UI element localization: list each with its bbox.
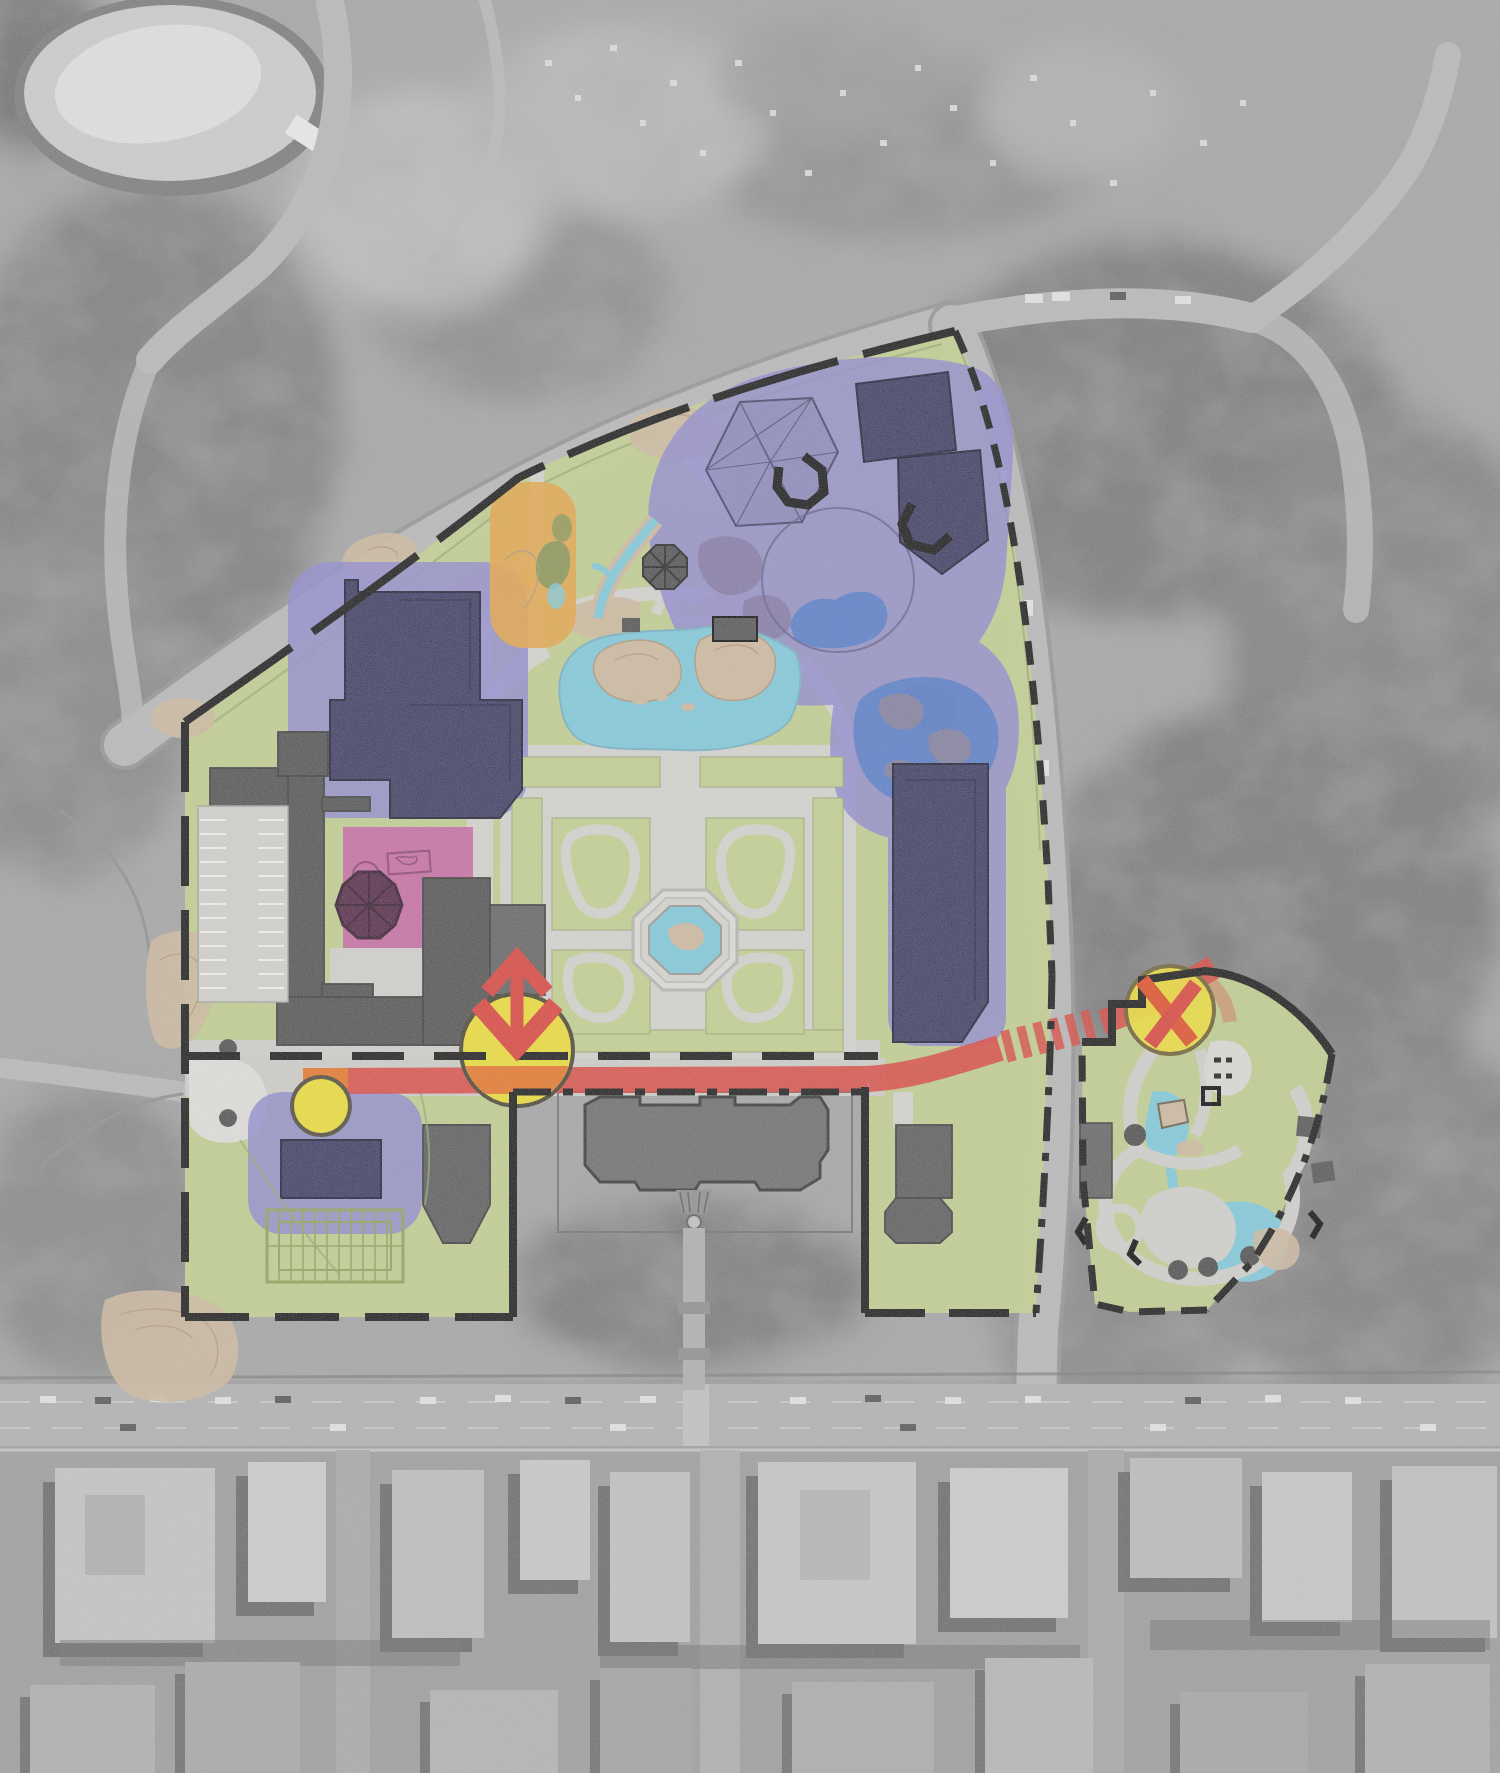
map-canvas — [0, 0, 1500, 1773]
photo-grain-overlay — [0, 0, 1500, 1773]
site-plan-map — [0, 0, 1500, 1773]
